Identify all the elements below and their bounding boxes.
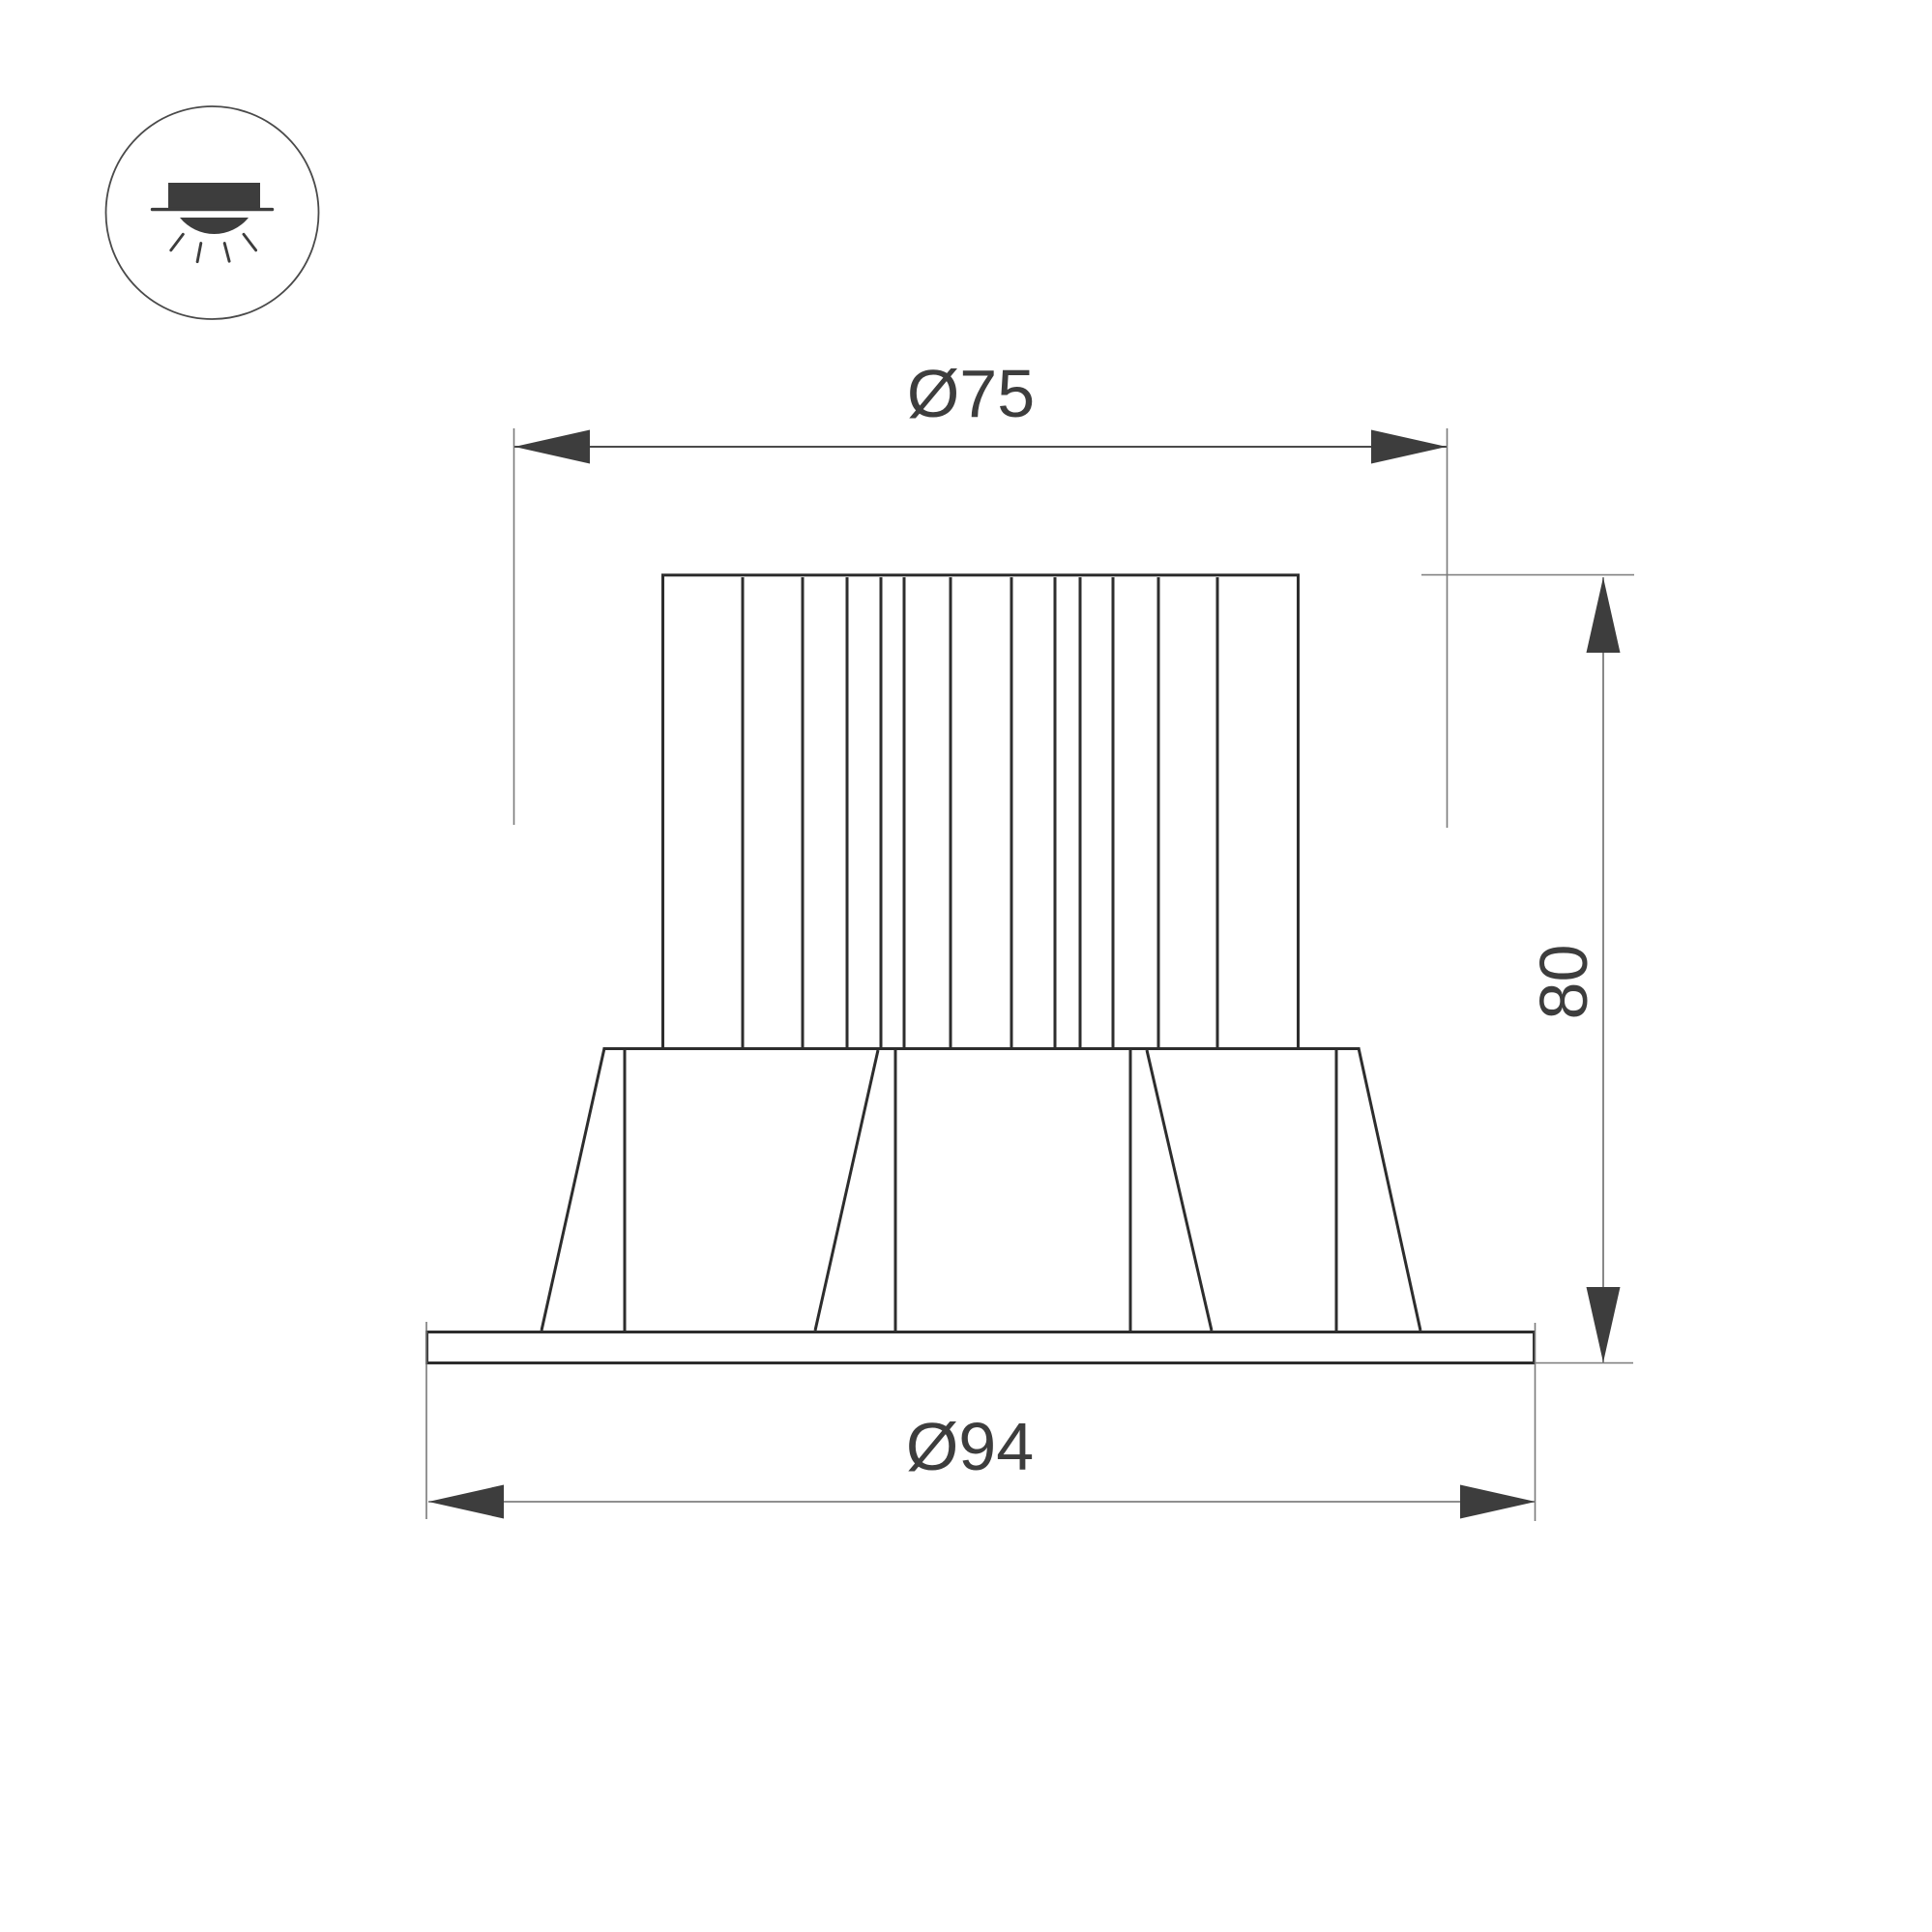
- svg-text:Ø94: Ø94: [906, 1409, 1034, 1484]
- svg-text:Ø75: Ø75: [907, 356, 1035, 431]
- svg-text:80: 80: [1526, 945, 1601, 1020]
